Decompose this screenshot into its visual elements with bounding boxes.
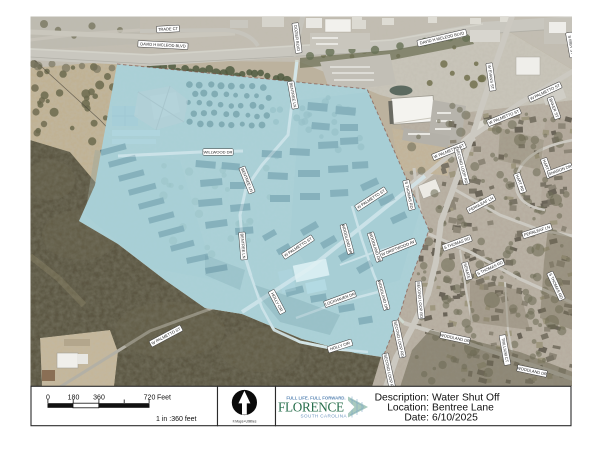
svg-text:F.Maps+Utilities: F.Maps+Utilities [233,420,257,424]
svg-text:SOUTH CAROLINA: SOUTH CAROLINA [301,413,348,418]
svg-text:6/10/2025: 6/10/2025 [432,412,478,423]
svg-text:1 in :360 feet: 1 in :360 feet [156,416,197,423]
svg-text:FLORENCE: FLORENCE [278,400,344,415]
svg-text:TRADE CT: TRADE CT [158,26,179,32]
svg-text:720: 720 [144,394,156,401]
svg-text:WILLWOOD DR: WILLWOOD DR [204,149,233,154]
svg-text:Feet: Feet [157,394,171,401]
svg-text:Date:: Date: [404,412,429,423]
